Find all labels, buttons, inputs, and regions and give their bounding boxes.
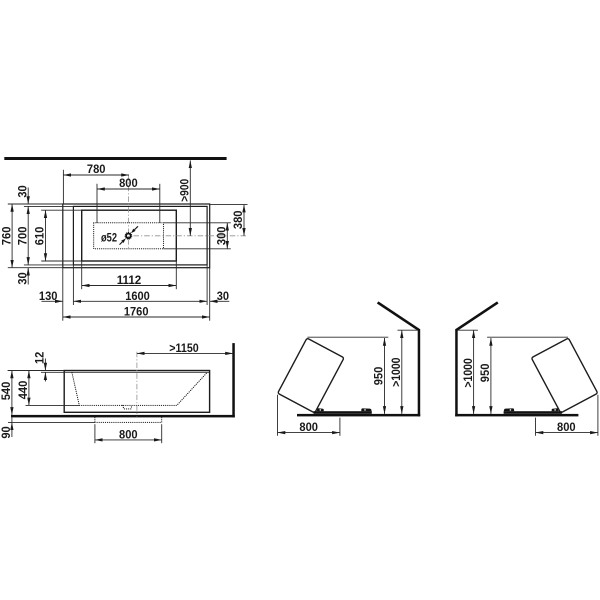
svg-text:800: 800 — [299, 420, 318, 434]
svg-text:ø52: ø52 — [101, 230, 117, 244]
svg-text:440: 440 — [16, 381, 30, 400]
svg-text:1760: 1760 — [124, 305, 149, 319]
svg-text:>900: >900 — [178, 179, 192, 202]
svg-text:800: 800 — [119, 176, 138, 190]
svg-text:700: 700 — [15, 226, 29, 245]
svg-text:950: 950 — [372, 367, 386, 386]
svg-text:90: 90 — [0, 426, 13, 438]
svg-text:1600: 1600 — [125, 289, 150, 303]
svg-text:30: 30 — [15, 272, 29, 284]
svg-text:1112: 1112 — [117, 273, 142, 287]
svg-text:30: 30 — [217, 289, 229, 303]
svg-text:380: 380 — [231, 210, 245, 229]
svg-text:130: 130 — [39, 289, 58, 303]
svg-text:300: 300 — [215, 226, 229, 245]
svg-text:800: 800 — [557, 420, 576, 434]
svg-text:760: 760 — [0, 226, 13, 245]
svg-text:>1150: >1150 — [169, 341, 199, 355]
svg-text:>1000: >1000 — [389, 357, 403, 387]
svg-text:30: 30 — [15, 185, 29, 197]
svg-text:12: 12 — [33, 351, 47, 363]
svg-text:800: 800 — [119, 427, 138, 441]
svg-text:950: 950 — [478, 363, 492, 382]
svg-text:>1000: >1000 — [461, 358, 475, 388]
svg-text:780: 780 — [87, 162, 106, 176]
svg-text:540: 540 — [0, 382, 13, 401]
svg-text:610: 610 — [33, 226, 47, 245]
